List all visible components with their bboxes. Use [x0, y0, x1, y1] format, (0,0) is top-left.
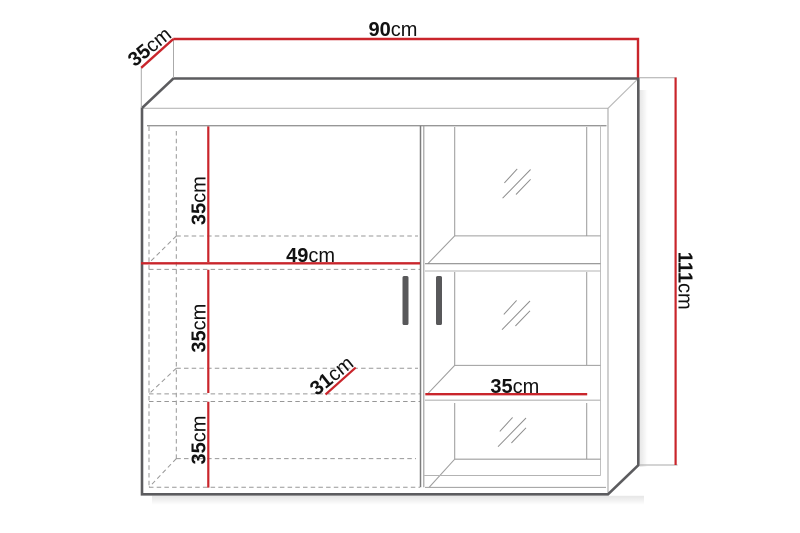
svg-text:35cm: 35cm: [189, 176, 211, 225]
svg-text:49cm: 49cm: [286, 245, 335, 267]
svg-text:111cm: 111cm: [674, 252, 696, 310]
svg-text:35cm: 35cm: [189, 416, 211, 465]
svg-text:35cm: 35cm: [490, 376, 539, 398]
svg-text:31cm: 31cm: [306, 352, 358, 400]
svg-text:35cm: 35cm: [124, 23, 176, 71]
svg-text:35cm: 35cm: [189, 304, 211, 353]
svg-text:90cm: 90cm: [369, 19, 418, 41]
